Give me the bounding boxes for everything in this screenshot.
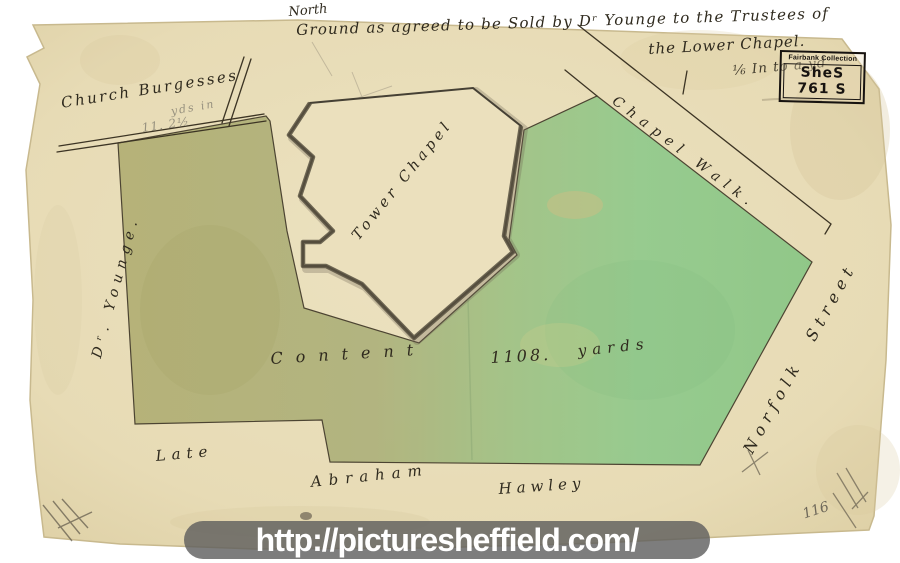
stamp-collection-name: Fairbank Collection [782, 52, 864, 64]
map-document: North Ground as agreed to be Sold by Dʳ … [0, 0, 900, 563]
content-area-value: 1108. [490, 346, 552, 367]
ink-smudge [300, 512, 312, 520]
watermark-url-text: http://picturesheffield.com/ [256, 522, 639, 558]
stamp-reference-number: SheS 761 S [783, 63, 862, 100]
watermark-bar: http://picturesheffield.com/ [184, 521, 710, 559]
fairbank-collection-stamp: Fairbank Collection SheS 761 S [779, 50, 866, 104]
